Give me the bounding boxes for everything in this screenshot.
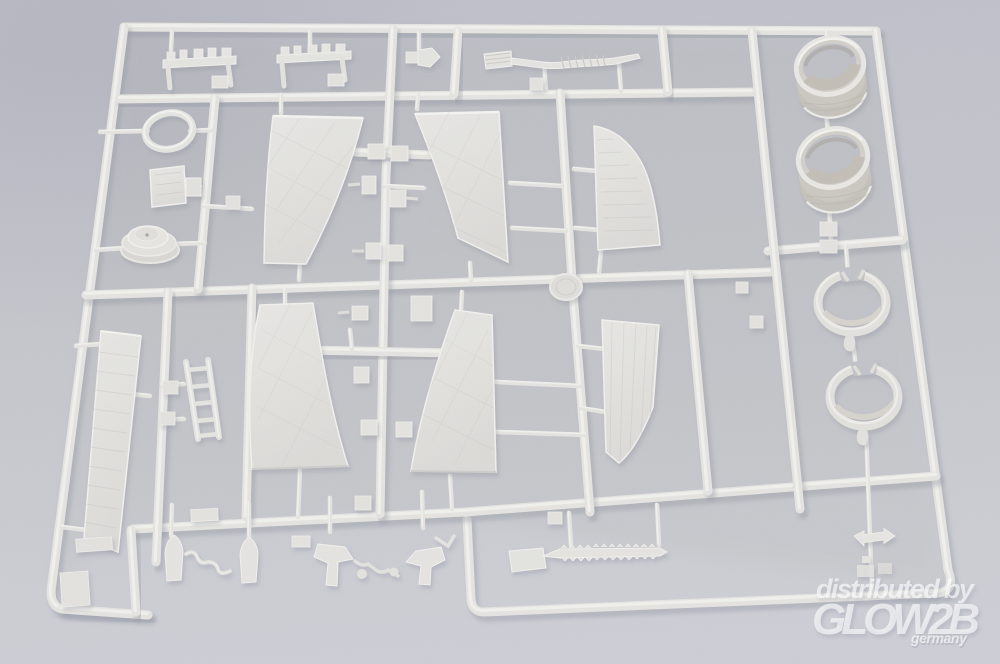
- svg-text:germany: germany: [910, 630, 968, 646]
